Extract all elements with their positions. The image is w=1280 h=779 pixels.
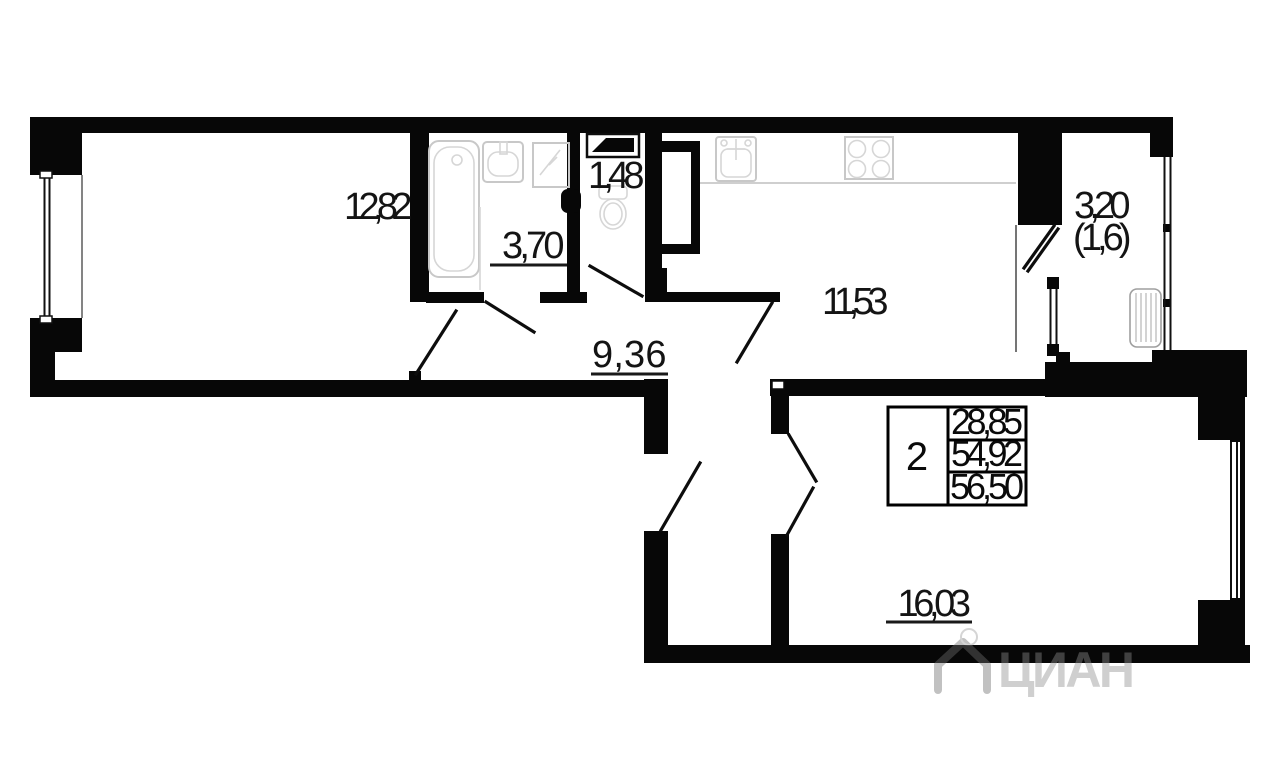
wall-bottomleft-pier [30, 318, 82, 352]
room-label-loggia-reduced: (1,6) [1073, 217, 1131, 259]
wall-bottomleft-step [30, 350, 55, 397]
wall-br-pier-bottom [1198, 600, 1240, 645]
wall-lower-left-a [644, 379, 668, 454]
info-table: 2 28,85 54,92 56,50 [888, 401, 1026, 507]
wall-right-mass-upper [1163, 350, 1247, 364]
floor-plan-drawing: 12,82 3,70 1,48 11,53 9,36 16,03 3,20 (1… [0, 0, 1280, 779]
wall-bedroom-div-b [771, 534, 789, 645]
cian-watermark-text: ЦИАН [998, 642, 1138, 698]
left-window-cap-bottom [40, 316, 52, 323]
room-label-bathroom: 3,70 [502, 225, 564, 267]
glazing-mark-c [1230, 436, 1240, 442]
radiator-fins [1136, 293, 1156, 342]
wall-lower-top [770, 379, 1247, 396]
toilet-bowl [604, 203, 622, 225]
wall-duct-right [691, 141, 700, 254]
washing-machine-icon [533, 143, 569, 187]
stove-icon [845, 137, 893, 179]
wall-notch [772, 381, 784, 389]
wall-br-pier-top [1198, 396, 1240, 440]
left-window-cap-top [40, 171, 52, 178]
wall-bath-bottom [426, 292, 484, 303]
bathtub-drain [452, 155, 462, 165]
glazing-mark-d [1230, 598, 1240, 604]
walls [30, 117, 1250, 663]
wall-towel-bump [561, 189, 581, 213]
kitchen-door-leaf [737, 303, 772, 362]
bath-sink-bowl [488, 152, 518, 176]
wall-corridor-bottom [55, 380, 668, 397]
wall-bedroom-div-a [771, 396, 789, 434]
washing-machine-mark-a [540, 150, 560, 175]
wall-duct-bottom [662, 244, 700, 254]
wall-top [30, 117, 1150, 133]
wall-topleft-pier [30, 133, 82, 175]
cian-watermark: ЦИАН [938, 629, 1138, 698]
bath-door-leaf [486, 302, 534, 332]
room-label-bedroom: 16,03 [898, 583, 971, 625]
bedroom-door-leaf-a [789, 435, 816, 481]
room-label-living: 12,82 [344, 186, 412, 228]
wall-right-outer [1240, 379, 1245, 663]
wall-right-step [1056, 352, 1070, 362]
entrance-door-leaf [661, 463, 700, 530]
stove-burner-3 [849, 161, 866, 178]
info-table-area-3: 56,50 [950, 466, 1024, 507]
wall-kitchen-loggia [1018, 130, 1062, 225]
wall-corridor-kitchen [660, 292, 780, 302]
stove-burner-4 [873, 161, 890, 178]
wall-lower-left-b [644, 531, 668, 662]
wall-living-bath [410, 133, 429, 302]
wall-wc-bottom [540, 292, 587, 303]
balcony-door-leaf-a [1024, 226, 1054, 268]
balcony-door-leaf-b [1028, 229, 1058, 271]
loggia-top-pier [1150, 117, 1173, 157]
bathtub-icon [429, 141, 479, 277]
room-label-kitchen: 11,53 [822, 281, 888, 323]
stove-burner-1 [849, 141, 866, 158]
balcony-door-stub-top [1047, 277, 1059, 289]
kitchen-sink-tap-b [745, 140, 751, 146]
room-label-wc: 1,48 [588, 155, 644, 197]
bathtub-inner [434, 147, 474, 271]
wc-door-leaf [590, 266, 642, 296]
floor-plan: 12,82 3,70 1,48 11,53 9,36 16,03 3,20 (1… [0, 0, 1280, 779]
kitchen-sink-tap-a [721, 140, 727, 146]
room-label-hall: 9,36 [592, 334, 666, 376]
stove-burner-2 [873, 141, 890, 158]
info-table-rooms-count: 2 [906, 435, 928, 479]
bedroom-door-leaf-b [787, 488, 813, 535]
living-door-leaf [416, 311, 456, 374]
